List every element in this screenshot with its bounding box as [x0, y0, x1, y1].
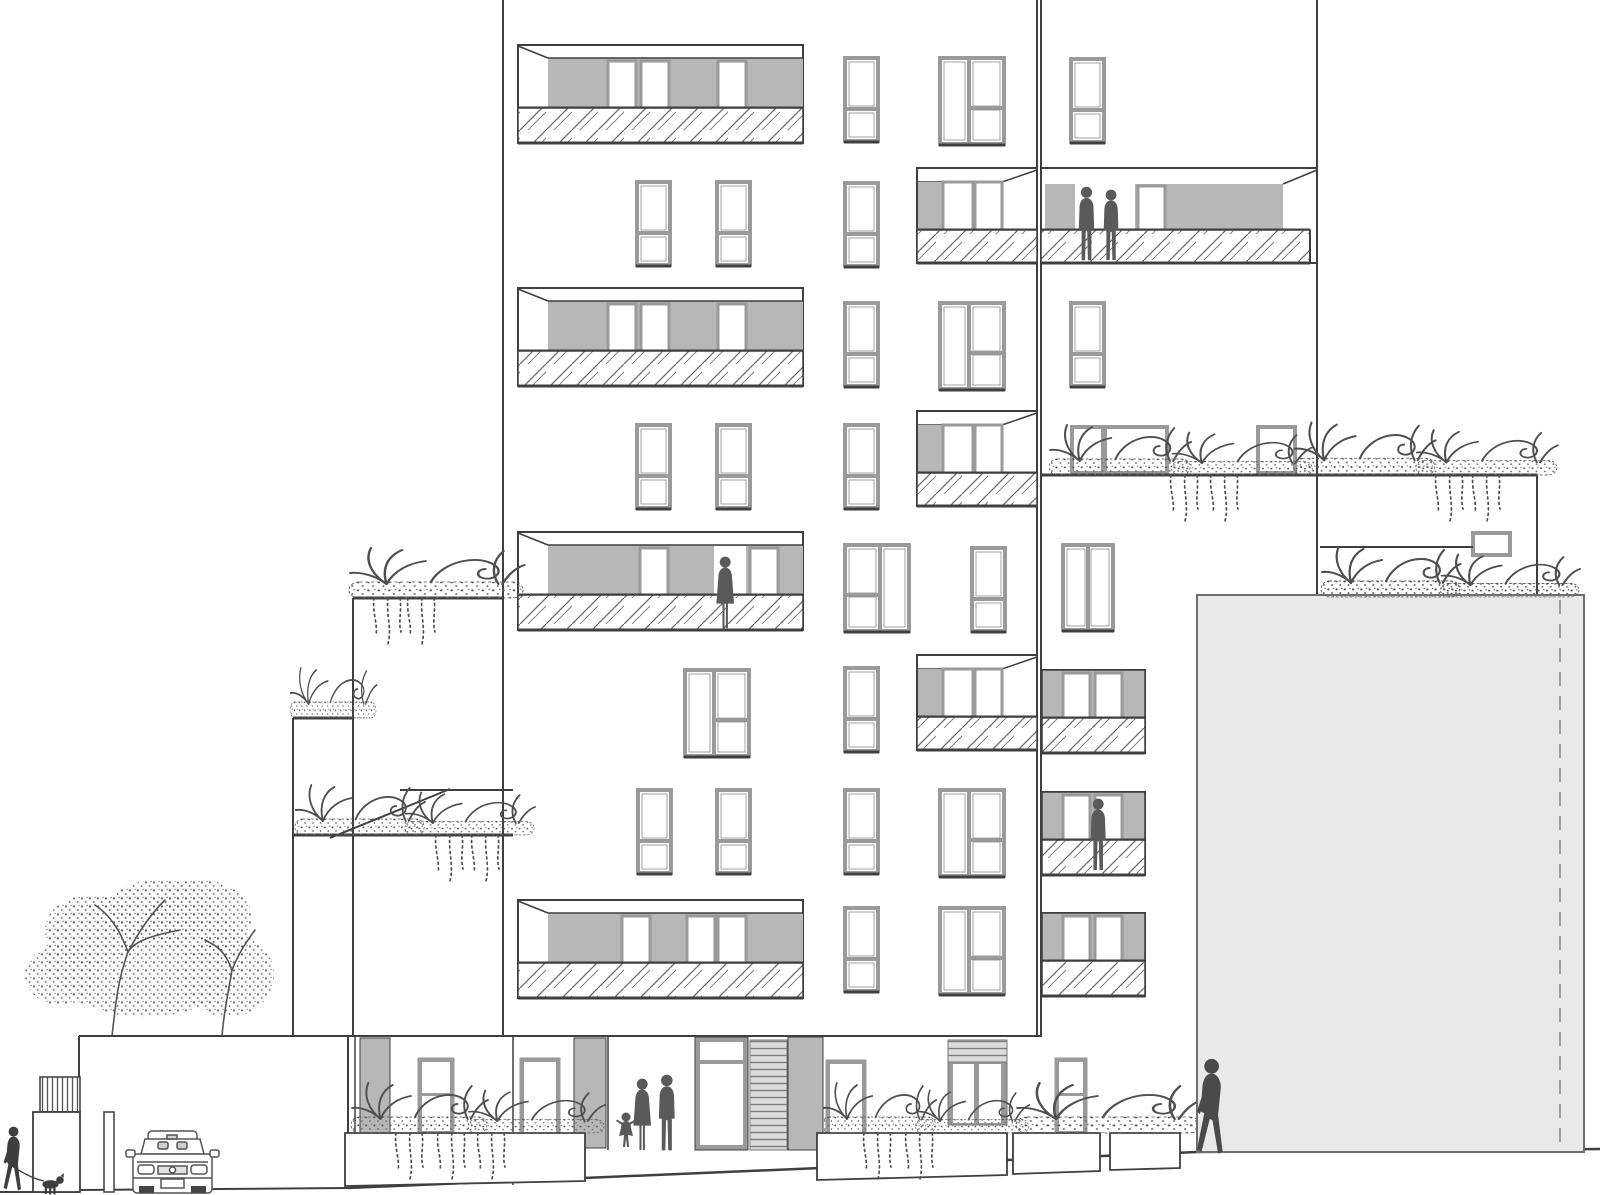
hanging-vine	[408, 598, 435, 644]
door-pane	[944, 794, 965, 872]
plant-cluster	[1321, 547, 1460, 597]
door-pane	[622, 916, 650, 963]
glazing-band	[548, 913, 803, 963]
vent-grate	[40, 1077, 80, 1112]
window-pane	[1075, 307, 1100, 351]
door-pane	[1138, 186, 1165, 230]
planter-box	[817, 1133, 1007, 1180]
window-pane	[849, 672, 874, 716]
louver-window	[948, 1040, 1007, 1125]
entrance-glass	[700, 1064, 743, 1145]
hanging-vine	[1473, 475, 1500, 521]
glazing-band	[918, 425, 942, 473]
window-pane	[849, 307, 874, 351]
window-pane	[849, 358, 874, 382]
french-window	[844, 908, 879, 992]
glazing-band	[548, 301, 803, 351]
hanging-vine	[436, 835, 463, 881]
door-pane	[943, 669, 973, 717]
glazing-band	[918, 669, 942, 717]
door-pane	[640, 548, 668, 595]
door-pane	[718, 61, 746, 108]
door-pane	[975, 182, 1002, 230]
window-pane	[721, 429, 746, 473]
tower-balcony-large	[1041, 168, 1317, 263]
window-pane	[721, 845, 746, 869]
window-pane	[641, 237, 666, 261]
hanging-vine	[472, 835, 499, 881]
planter-box	[1013, 1133, 1100, 1174]
door-pane	[884, 549, 905, 627]
french-window	[1070, 59, 1105, 143]
louver-panel	[750, 1040, 787, 1150]
window-pane	[976, 552, 1001, 596]
window-pane	[973, 355, 1000, 385]
door-pane	[718, 304, 746, 351]
hanging-vine	[374, 598, 401, 644]
tree	[25, 880, 274, 1036]
entrance-door	[695, 1037, 748, 1150]
person-figure	[4, 1127, 21, 1191]
glazing-band	[918, 182, 942, 230]
window-pane	[1091, 549, 1109, 626]
person-figure	[616, 1113, 636, 1148]
door-pane	[687, 916, 715, 963]
window-pane	[721, 186, 746, 230]
side-mirror	[126, 1150, 135, 1157]
street-tree	[25, 880, 274, 1036]
window-pane	[849, 238, 874, 262]
window-pane	[849, 794, 874, 838]
car-windshield	[141, 1139, 204, 1154]
door-pane	[750, 548, 778, 595]
tree-canopy	[182, 933, 274, 1017]
ground-line	[79, 1188, 348, 1190]
glass-railing	[1042, 961, 1145, 996]
bollard-post	[104, 1112, 114, 1192]
window-pane	[721, 794, 746, 838]
window-pane	[849, 62, 874, 106]
window-pane	[1059, 1062, 1083, 1093]
elevation-drawing	[0, 0, 1600, 1195]
right-balcony	[917, 411, 1037, 506]
glass-railing	[917, 230, 1037, 263]
plant-cluster	[1294, 423, 1436, 476]
person-figure	[633, 1079, 651, 1150]
window-pane	[849, 723, 874, 747]
person-figure	[659, 1075, 675, 1151]
door-pane	[689, 674, 710, 752]
door-pane	[1063, 673, 1090, 718]
french-window	[716, 182, 751, 266]
right-balcony	[917, 168, 1037, 263]
door-pane	[1095, 673, 1122, 718]
window-pane	[849, 597, 876, 627]
car-headrest	[177, 1142, 187, 1149]
terrace-window	[1473, 533, 1510, 555]
door-pane	[1095, 916, 1122, 961]
window-pane	[973, 307, 1000, 351]
window-pane	[1075, 114, 1100, 138]
transom-pane	[700, 1042, 743, 1060]
tower-balcony-small	[1042, 670, 1145, 753]
left-balcony	[518, 532, 803, 630]
door-pane	[975, 669, 1002, 717]
window-pane	[849, 480, 874, 504]
window-pane	[641, 186, 666, 230]
brand-badge	[170, 1167, 176, 1173]
window-pane	[973, 62, 1000, 106]
hanging-vine	[1171, 475, 1198, 521]
door-pane	[944, 62, 965, 140]
french-window	[844, 425, 879, 509]
plant-cluster	[1016, 1083, 1202, 1133]
plant-cluster	[1441, 555, 1580, 598]
tower-balcony-small	[1042, 792, 1145, 875]
window-pane	[849, 113, 874, 137]
window-pane	[973, 842, 1000, 872]
window-pane	[973, 912, 1000, 956]
double-window	[1062, 545, 1114, 631]
door-pane	[943, 425, 973, 473]
window-pane	[973, 794, 1000, 838]
window-pane	[641, 480, 666, 504]
window-pane	[641, 429, 666, 473]
window-pane	[973, 960, 1000, 990]
window-pane	[642, 794, 667, 838]
window-pane	[849, 549, 876, 593]
door-pane	[641, 304, 669, 351]
window-pane	[849, 912, 874, 956]
rearview-mirror	[167, 1135, 177, 1139]
hanging-vine	[1436, 475, 1463, 521]
french-window	[844, 58, 879, 142]
door-pane	[943, 182, 973, 230]
glass-railing	[518, 108, 803, 143]
plant-cluster	[290, 668, 377, 718]
french-window	[716, 790, 751, 874]
door-pane	[1063, 916, 1090, 961]
headlight	[138, 1165, 154, 1174]
door-pane	[944, 912, 965, 990]
tower-balcony-small	[1042, 913, 1145, 996]
glazing-band	[548, 58, 803, 108]
french-window	[716, 425, 751, 509]
window-pane	[1075, 358, 1100, 382]
planter-box	[1110, 1133, 1180, 1170]
window-pane	[849, 845, 874, 869]
car-headrest	[158, 1142, 168, 1149]
window-pane	[849, 429, 874, 473]
window-pane	[718, 674, 745, 718]
door-pane	[718, 916, 746, 963]
tree-canopy	[25, 945, 95, 1005]
french-window	[844, 668, 879, 752]
tree-canopy	[105, 880, 215, 940]
glass-railing	[1041, 230, 1310, 263]
window-pane	[721, 237, 746, 261]
hanging-vine	[1211, 475, 1238, 521]
french-window	[636, 182, 671, 266]
foreground-building-mass	[1197, 595, 1584, 1152]
door-pane	[975, 425, 1002, 473]
parked-car	[126, 1131, 219, 1193]
french-window	[844, 183, 879, 267]
left-balcony	[518, 45, 803, 143]
glass-railing	[518, 351, 803, 386]
door-pane	[1063, 795, 1090, 840]
french-window	[637, 790, 672, 874]
headlight	[191, 1165, 207, 1174]
left-balcony	[518, 288, 803, 386]
license-plate	[161, 1179, 184, 1188]
french-window	[636, 425, 671, 509]
glass-railing	[917, 717, 1037, 750]
foreground-building	[1197, 547, 1584, 1154]
window-pane	[976, 603, 1001, 627]
side-mirror	[210, 1150, 219, 1157]
glass-railing	[518, 595, 803, 630]
plant-cluster	[1416, 430, 1558, 475]
wheel	[191, 1186, 206, 1193]
french-window	[1070, 303, 1105, 387]
glass-railing	[1042, 718, 1145, 753]
louver-transom	[948, 1040, 1007, 1062]
window-pane	[849, 963, 874, 987]
window-pane	[1067, 549, 1085, 626]
right-balcony	[917, 655, 1037, 750]
window-pane	[849, 187, 874, 231]
plant-cluster	[1171, 433, 1313, 476]
plant-cluster	[349, 548, 524, 598]
glass-railing	[917, 473, 1037, 506]
window-pane	[721, 480, 746, 504]
window-pane	[718, 722, 745, 752]
french-window	[844, 790, 879, 874]
window-pane	[973, 110, 1000, 140]
french-window	[844, 303, 879, 387]
door-pane	[608, 61, 636, 108]
glass-railing	[518, 963, 803, 998]
door-pane	[608, 304, 636, 351]
door-pane	[944, 307, 965, 385]
window-pane	[642, 845, 667, 869]
window-pane	[1075, 63, 1100, 107]
left-balcony	[518, 900, 803, 998]
window-pane	[422, 1062, 450, 1093]
door-pane	[641, 61, 669, 108]
window-pane	[979, 1064, 1001, 1123]
elevation-canvas	[0, 0, 1600, 1195]
wheel	[139, 1186, 154, 1193]
french-window	[971, 548, 1006, 632]
